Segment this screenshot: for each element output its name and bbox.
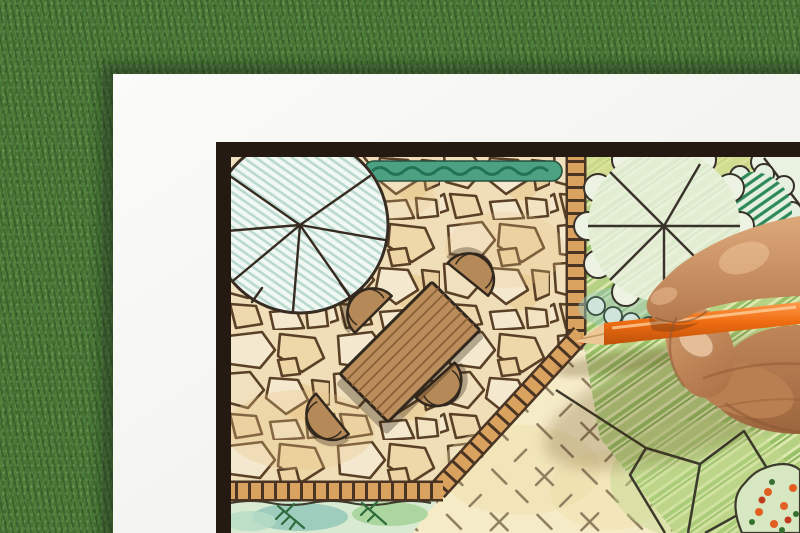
hedge-strip (364, 161, 562, 181)
planting-bed (224, 501, 437, 533)
tree-symbol (212, 137, 388, 313)
photo-scene (0, 0, 800, 533)
plan-drawing (0, 0, 800, 533)
